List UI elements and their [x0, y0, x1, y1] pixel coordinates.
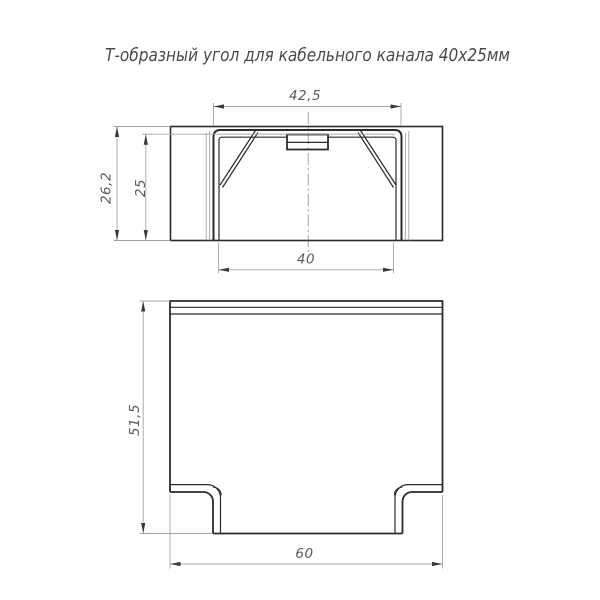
dimension-label-overall-width: 60 — [295, 546, 313, 562]
technical-drawing-canvas: Т-образный угол для кабельного канала 40… — [0, 0, 600, 600]
front-view-drawing: 42,5 26,2 25 — [99, 88, 443, 273]
latch-spring-line — [223, 133, 259, 188]
dimension-cover-width: 42,5 — [214, 88, 402, 126]
latch-spring-line — [358, 133, 394, 188]
stem-left-outer — [170, 492, 213, 534]
dimension-channel-width: 40 — [219, 243, 394, 274]
dimension-label-channel-width: 40 — [297, 252, 315, 268]
stem-right-outer — [403, 492, 443, 534]
dimension-label-channel-height: 25 — [133, 179, 149, 197]
dimension-channel-height: 25 — [133, 134, 395, 240]
drawing-title: Т-образный угол для кабельного канала 40… — [105, 45, 510, 66]
plan-outline — [170, 301, 443, 492]
drawing-sheet: Т-образный угол для кабельного канала 40… — [0, 0, 600, 600]
latch-spring-line — [220, 131, 256, 186]
dimension-label-cover-width: 42,5 — [289, 88, 321, 104]
cover-inner-profile-right — [329, 137, 397, 240]
latch-spring-line — [361, 131, 397, 186]
cover-inner-profile-left — [219, 137, 287, 240]
plan-view-drawing: 51,5 60 — [127, 301, 443, 569]
dimension-label-overall-height: 26,2 — [99, 172, 115, 204]
cover-outer-profile — [214, 130, 402, 241]
dimension-label-overall-depth: 51,5 — [127, 404, 143, 436]
